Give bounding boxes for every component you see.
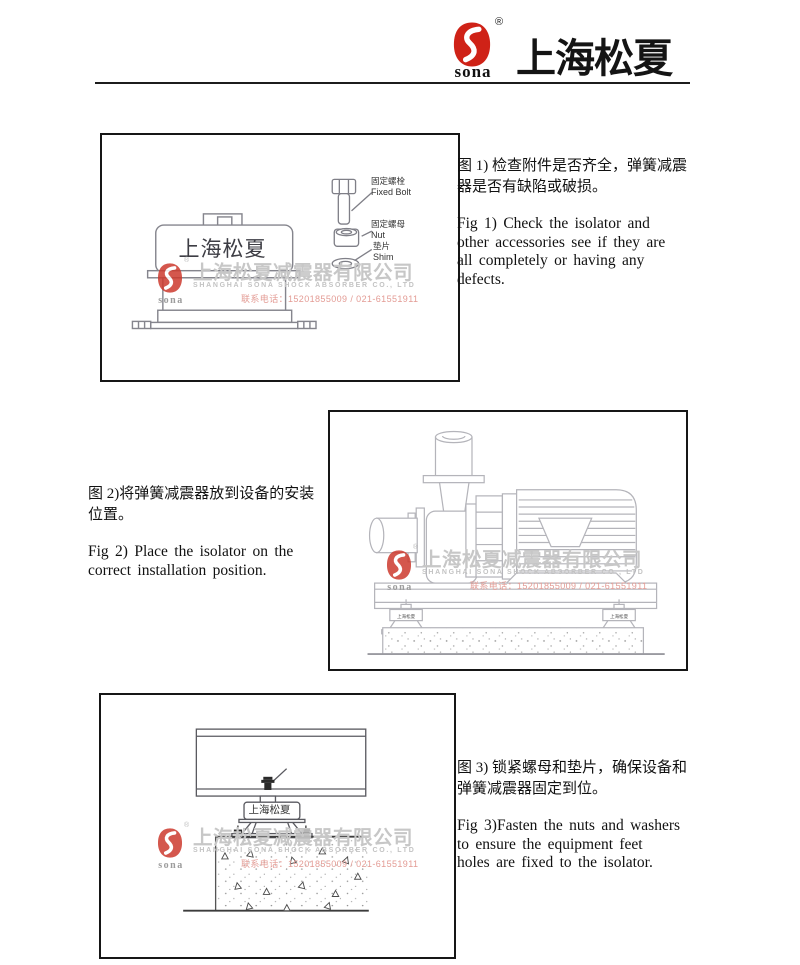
figure2-line-art: 上海松夏 上海松夏 xyxy=(330,412,686,669)
caption-cn-line: 弹簧减震器固定到位。 xyxy=(457,779,687,800)
caption-cn-line: 器是否有缺陷或破损。 xyxy=(457,177,687,198)
brand-logo-text: sona xyxy=(449,62,497,82)
caption-cn-line: 位置。 xyxy=(88,505,314,526)
sona-logo-icon xyxy=(452,21,492,68)
figure2-box: 上海松夏 上海松夏 ® sona 上海松夏减震器有限公司 SHANGHAI SO… xyxy=(328,410,688,671)
watermark-company-en: SHANGHAI SONA SHOCK ABSORBER CO., LTD xyxy=(422,569,686,576)
brand-title: 上海松夏 xyxy=(516,26,672,84)
caption-en-line: Fig 1) Check the isolator and xyxy=(457,215,687,234)
part-label-fixed-bolt: 固定螺栓 Fixed Bolt xyxy=(371,176,411,198)
caption-en-line: other accessories see if they are xyxy=(457,234,687,253)
watermark-phone: 联系电话：15201855009 / 021-61551911 xyxy=(241,292,457,305)
sona-watermark-icon xyxy=(157,262,183,294)
part-label-nut: 固定螺母 Nut xyxy=(371,219,405,241)
isolator-brand-label: 上海松夏 xyxy=(242,802,297,817)
figure2-caption: 图 2)将弹簧减震器放到设备的安装 位置。 Fig 2) Place the i… xyxy=(88,484,314,580)
caption-en-line: correct installation position. xyxy=(88,562,314,581)
caption-cn-line: 图 3) 锁紧螺母和垫片，确保设备和 xyxy=(457,758,687,779)
company-watermark: ® sona 上海松夏减震器有限公司 SHANGHAI SONA SHOCK A… xyxy=(157,256,457,305)
sona-watermark-icon xyxy=(386,549,412,581)
figure3-caption: 图 3) 锁紧螺母和垫片，确保设备和 弹簧减震器固定到位。 Fig 3)Fast… xyxy=(457,758,687,873)
figure3-box: 上海松夏 ® sona 上海松夏减震器有限公司 SHANGHAI SONA SH… xyxy=(99,693,456,959)
caption-en-line: Fig 2) Place the isolator on the xyxy=(88,543,314,562)
caption-cn-line: 图 2)将弹簧减震器放到设备的安装 xyxy=(88,484,314,505)
registered-mark: ® xyxy=(413,544,418,551)
header-divider xyxy=(95,82,690,84)
watermark-company-en: SHANGHAI SONA SHOCK ABSORBER CO., LTD xyxy=(193,282,457,289)
watermark-logo-text: sona xyxy=(155,860,187,871)
watermark-phone: 联系电话：15201855009 / 021-61551911 xyxy=(241,857,457,870)
caption-en-line: all completely or having any xyxy=(457,252,687,271)
watermark-company-cn: 上海松夏减震器有限公司 xyxy=(193,256,457,285)
registered-mark: ® xyxy=(184,822,189,829)
caption-en-line: to ensure the equipment feet xyxy=(457,836,687,855)
sona-watermark-icon xyxy=(157,827,183,859)
isolator-small-label: 上海松夏 xyxy=(397,613,416,620)
caption-en-line: defects. xyxy=(457,271,687,290)
company-watermark: ® sona 上海松夏减震器有限公司 SHANGHAI SONA SHOCK A… xyxy=(386,543,686,592)
watermark-company-cn: 上海松夏减震器有限公司 xyxy=(193,821,457,850)
caption-en-line: holes are fixed to the isolator. xyxy=(457,854,687,873)
registered-mark: ® xyxy=(184,257,189,264)
registered-mark: ® xyxy=(495,16,503,28)
caption-cn-line: 图 1) 检查附件是否齐全，弹簧减震 xyxy=(457,156,687,177)
watermark-company-cn: 上海松夏减震器有限公司 xyxy=(422,543,686,572)
watermark-company-en: SHANGHAI SONA SHOCK ABSORBER CO., LTD xyxy=(193,847,457,854)
watermark-phone: 联系电话：15201855009 / 021-61551911 xyxy=(470,579,686,592)
company-watermark: ® sona 上海松夏减震器有限公司 SHANGHAI SONA SHOCK A… xyxy=(157,821,457,870)
watermark-logo-text: sona xyxy=(384,582,416,593)
watermark-logo-text: sona xyxy=(155,295,187,306)
isolator-small-label: 上海松夏 xyxy=(610,613,629,620)
figure1-caption: 图 1) 检查附件是否齐全，弹簧减震 器是否有缺陷或破损。 Fig 1) Che… xyxy=(457,156,687,289)
caption-en-line: Fig 3)Fasten the nuts and washers xyxy=(457,817,687,836)
figure1-box: 上海松夏 固定螺栓 Fixed Bolt 固定螺母 Nut 垫片 Shim ® … xyxy=(100,133,460,382)
document-page: ® sona 上海松夏 xyxy=(0,0,800,965)
